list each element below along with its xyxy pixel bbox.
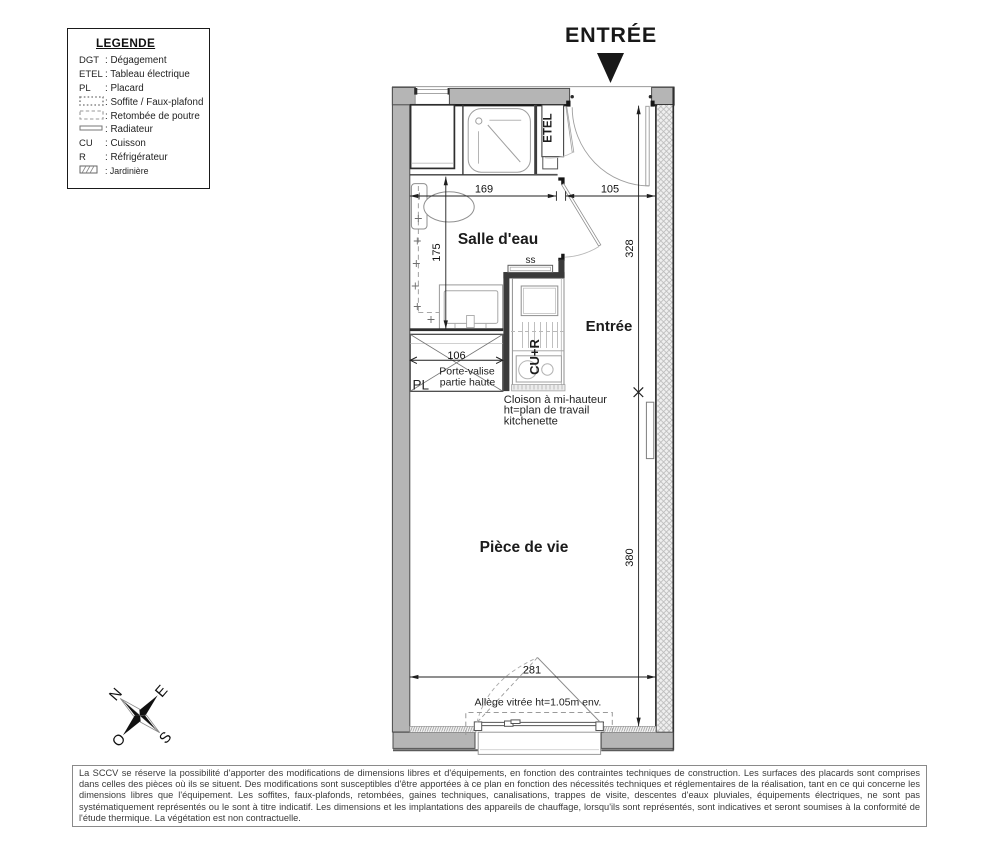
svg-text:S: S	[156, 729, 175, 748]
svg-text:175: 175	[431, 243, 443, 261]
svg-text:Salle d'eau: Salle d'eau	[458, 231, 538, 248]
svg-text:ss: ss	[526, 255, 536, 266]
svg-text:380: 380	[624, 548, 636, 566]
svg-text:PL: PL	[413, 378, 430, 393]
svg-text:106: 106	[447, 350, 465, 362]
svg-text:169: 169	[475, 184, 493, 196]
svg-text:328: 328	[624, 239, 636, 257]
svg-text:Allège vitrée ht=1.05m env.: Allège vitrée ht=1.05m env.	[475, 697, 602, 709]
svg-text:partie haute: partie haute	[440, 376, 496, 388]
svg-text:O: O	[109, 730, 129, 750]
svg-text:Entrée: Entrée	[586, 318, 633, 335]
svg-text:Pièce de vie: Pièce de vie	[480, 539, 569, 556]
svg-text:281: 281	[523, 665, 541, 677]
svg-text:ENTRÉE: ENTRÉE	[565, 22, 657, 47]
svg-text:105: 105	[601, 184, 619, 196]
svg-text:ETEL: ETEL	[543, 113, 555, 142]
svg-text:kitchenette: kitchenette	[504, 416, 558, 428]
svg-text:CU+R: CU+R	[527, 339, 542, 375]
